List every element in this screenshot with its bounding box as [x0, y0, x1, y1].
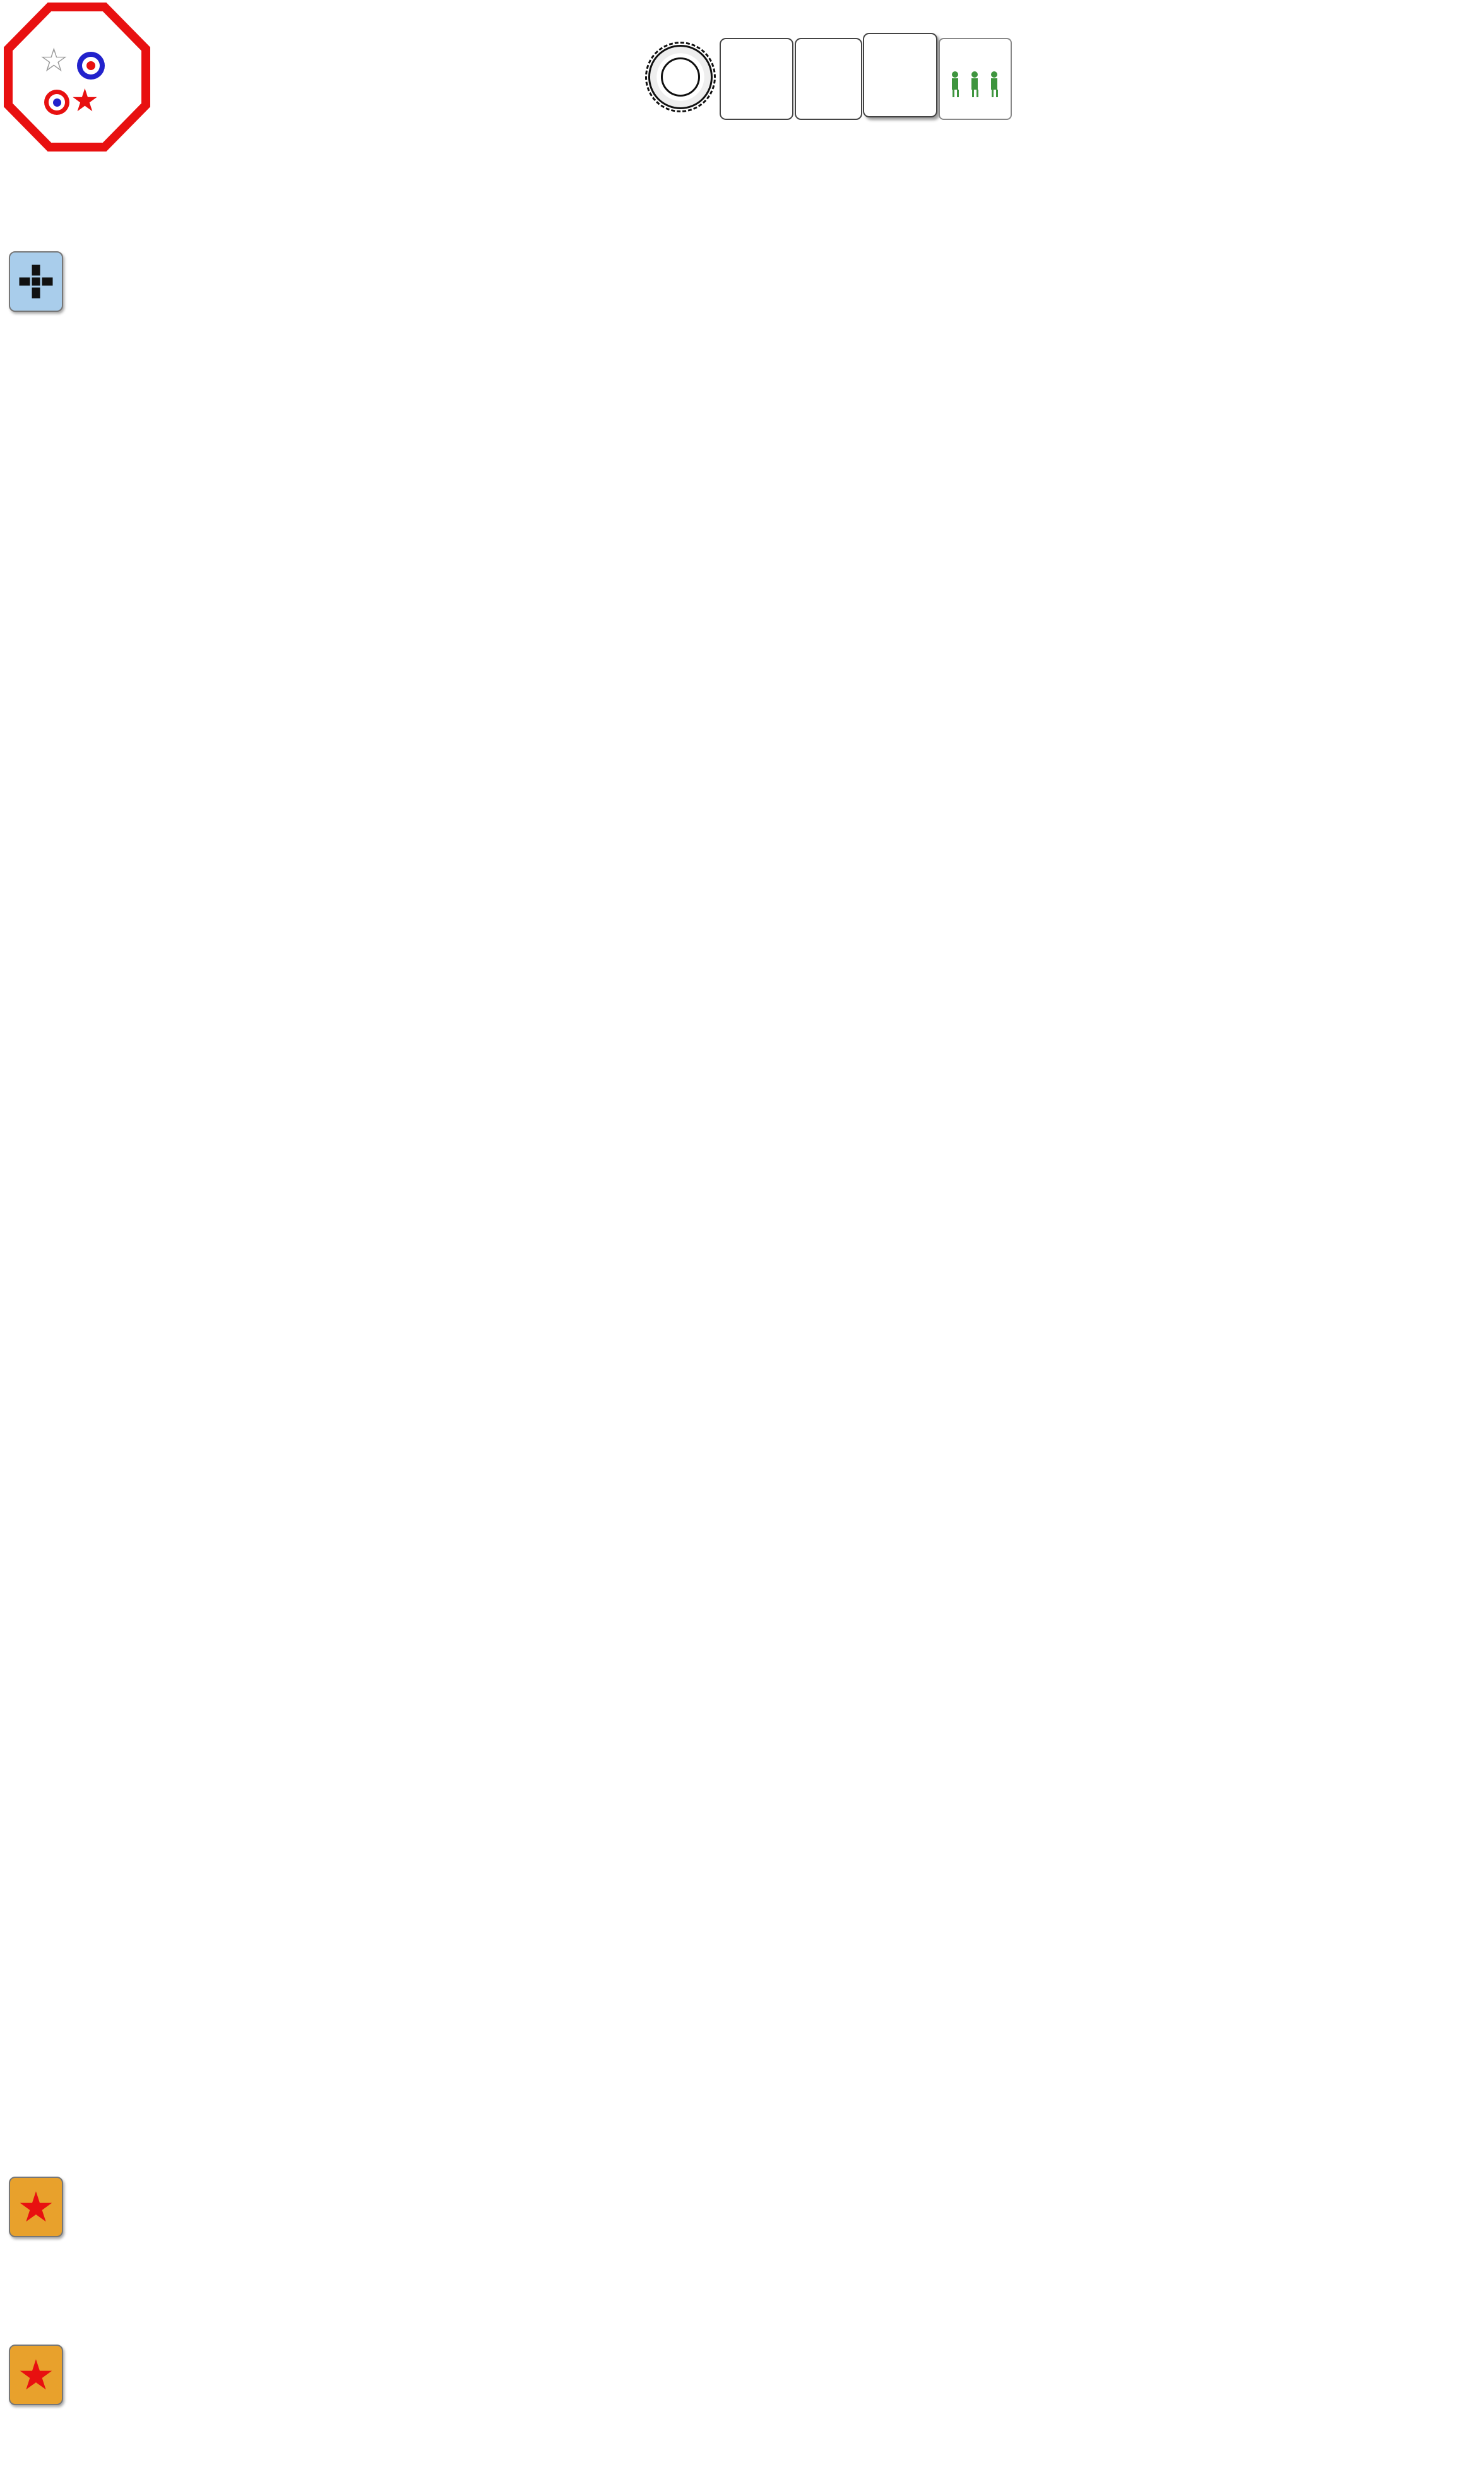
wind-marker[interactable]: [795, 38, 862, 120]
soviet-star-icon: ★: [71, 85, 99, 116]
prisoner-figures-icon: [946, 69, 1003, 102]
compass-marker[interactable]: [645, 38, 716, 116]
compass-ring-icon: [648, 45, 713, 109]
vassal-window: { "header": { "title": "THE STREETS OF K…: [0, 0, 1484, 2479]
german-cross-icon: [17, 263, 55, 300]
weather-marker[interactable]: [720, 38, 793, 120]
russian-section2-icon: ★: [9, 2345, 63, 2405]
gusts-marker[interactable]: [863, 33, 937, 117]
compass-letter: [661, 57, 700, 97]
roundel-blue-icon: [77, 52, 105, 80]
allied-star-outline-icon: ☆: [39, 44, 69, 77]
red-star-icon: ★: [17, 2354, 54, 2396]
roundel-red-icon: [44, 90, 69, 115]
red-star-icon: ★: [17, 2186, 54, 2228]
german-section-icon: [9, 251, 63, 312]
no-quarter-marker[interactable]: [939, 38, 1012, 120]
game-map[interactable]: [13, 500, 1112, 2137]
russian-section1-icon: ★: [9, 2177, 63, 2237]
phase-wheel[interactable]: ☆ ★: [4, 3, 150, 152]
phase-wheel-face: [13, 11, 141, 143]
